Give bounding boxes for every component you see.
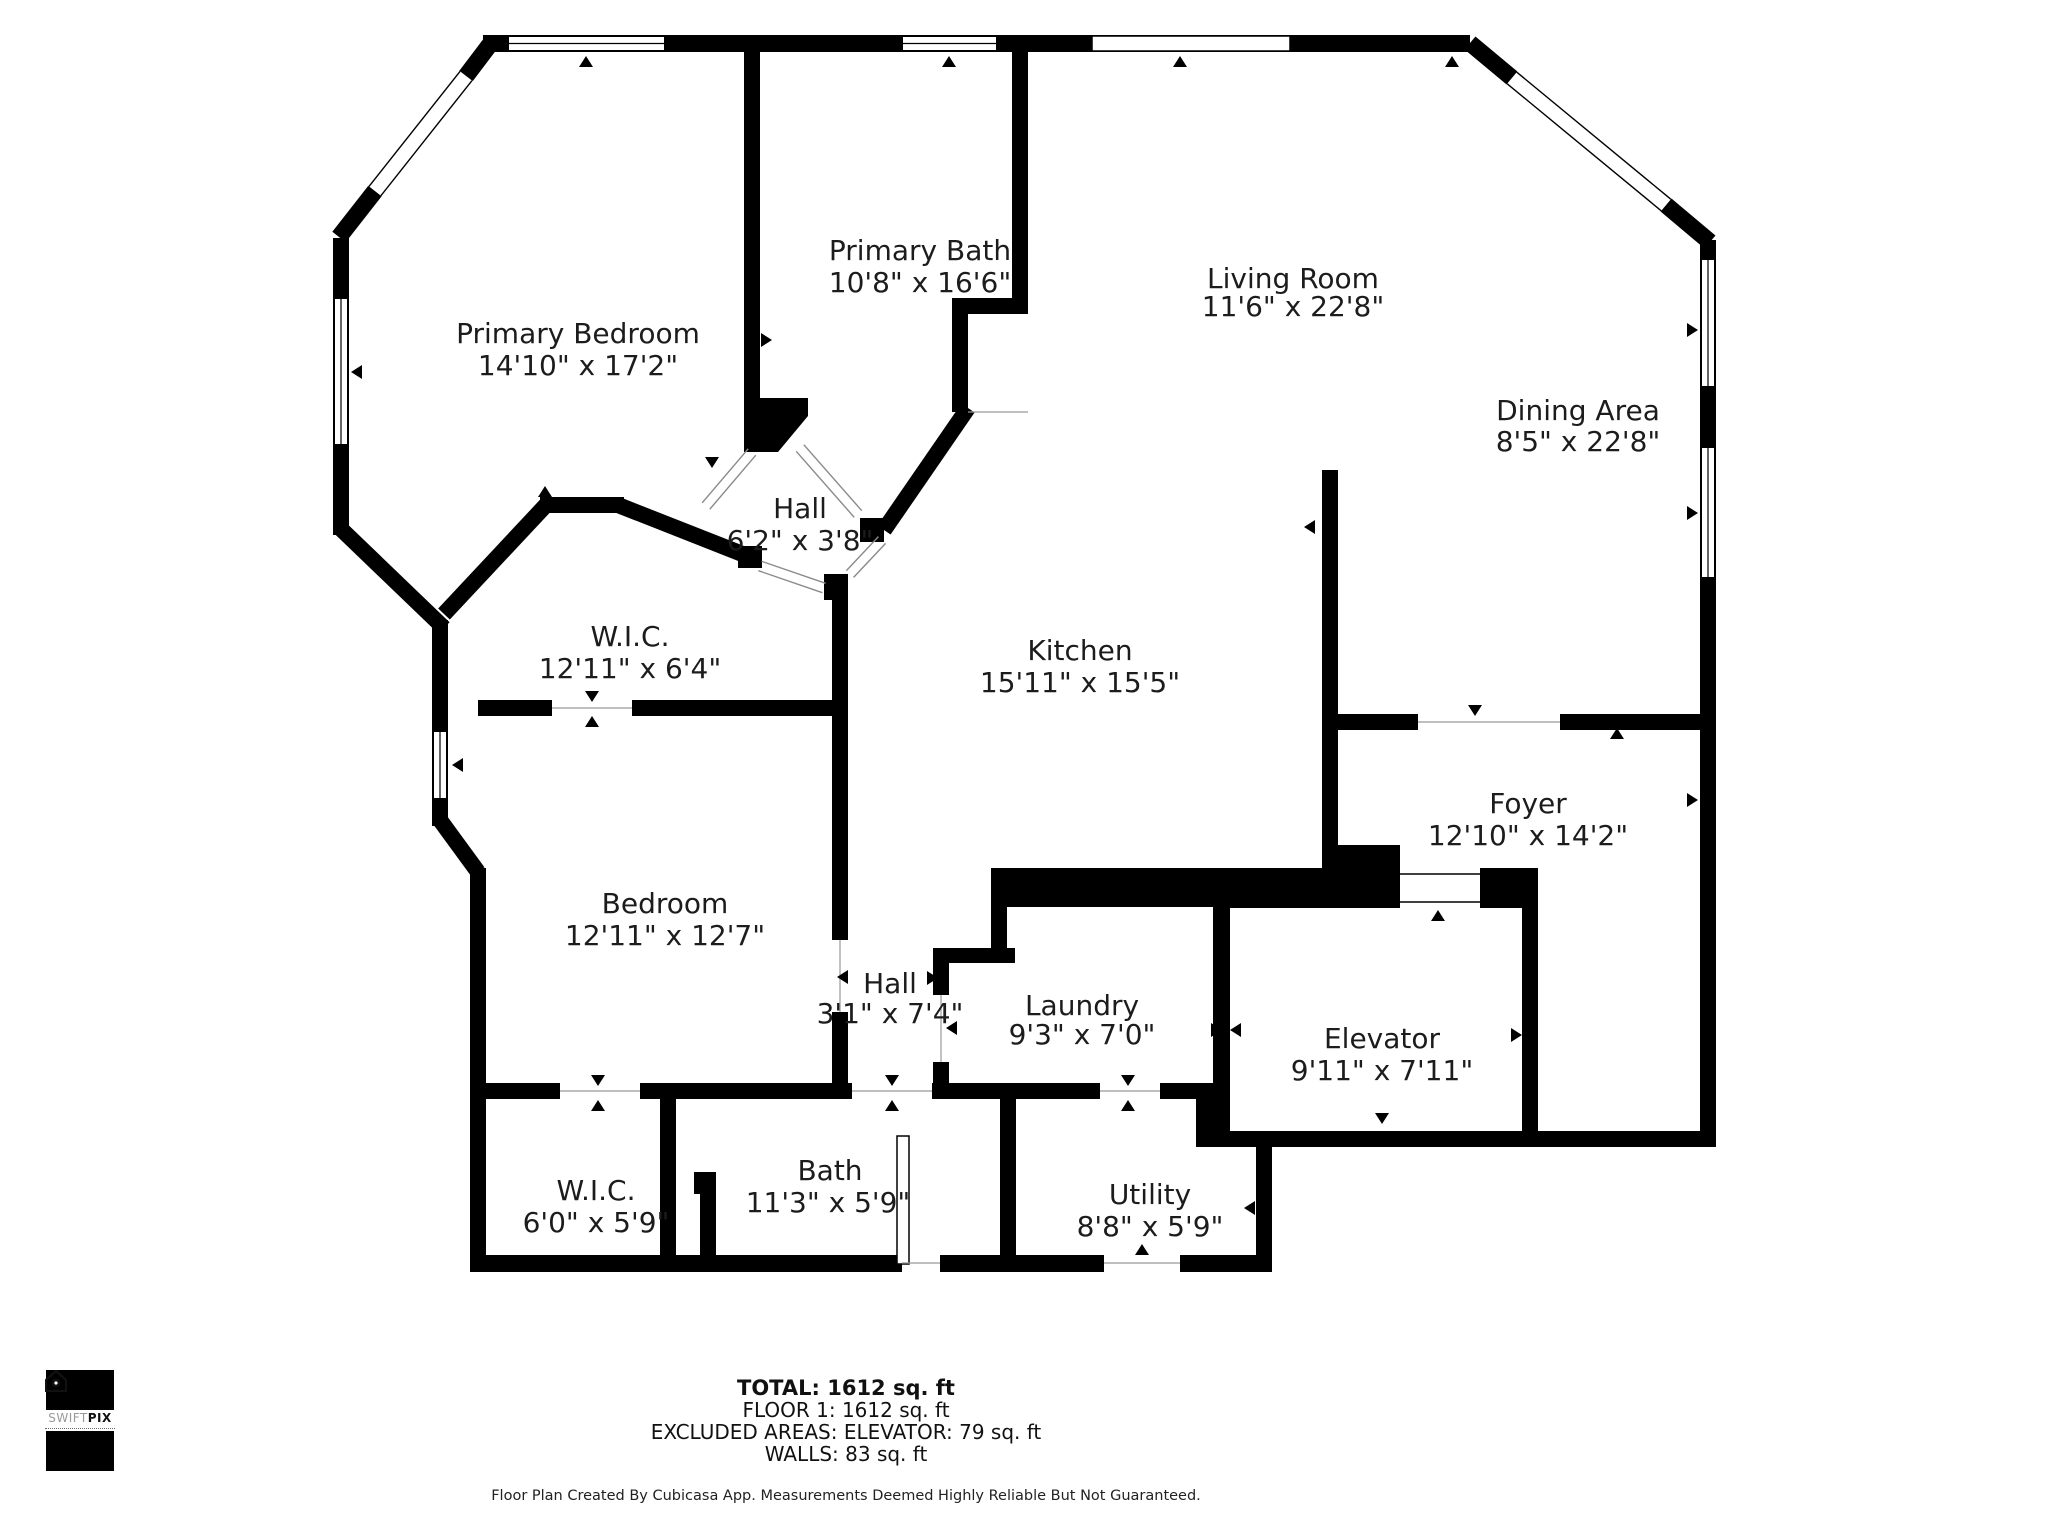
wall (952, 298, 968, 412)
wall (1470, 43, 1512, 78)
wall (466, 43, 491, 76)
marker-up-icon (1431, 910, 1445, 921)
disclaimer-text: Floor Plan Created By Cubicasa App. Meas… (491, 1488, 1201, 1504)
room-dims-bath: 11'3" x 5'9" (746, 1186, 911, 1219)
marker-left-icon (837, 970, 848, 984)
marker-down-icon (885, 1075, 899, 1086)
wall (478, 700, 552, 716)
window (508, 36, 665, 51)
marker-down-icon (1375, 1113, 1389, 1124)
wall (632, 700, 848, 716)
elevator-door (1400, 868, 1480, 908)
summary-walls: WALLS: 83 sq. ft (651, 1443, 1042, 1465)
room-dims-wic-lower: 6'0" x 5'9" (523, 1206, 670, 1239)
floor-plan-page: { "rooms": [ {"id":"primary-bedroom","na… (0, 0, 2048, 1536)
marker-up-icon (1121, 1100, 1135, 1111)
wall (1322, 470, 1338, 845)
room-dims-bedroom: 12'11" x 12'7" (565, 919, 765, 952)
wall (744, 398, 808, 452)
wall (333, 445, 349, 535)
logo-mid: SWIFTPIX (45, 1410, 115, 1429)
marker-up-icon (885, 1100, 899, 1111)
logo-brand-light: SWIFT (48, 1411, 88, 1425)
marker-up-icon (942, 56, 956, 67)
marker-down-icon (591, 1075, 605, 1086)
marker-left-icon (452, 758, 463, 772)
window (1092, 36, 1290, 51)
door-line (702, 449, 748, 503)
wall (1700, 578, 1716, 1147)
window (433, 731, 447, 799)
window (1701, 259, 1715, 387)
wall (884, 408, 968, 530)
wall (932, 1083, 1100, 1099)
marker-left-icon (1230, 1023, 1241, 1037)
room-label-kitchen: Kitchen (1027, 634, 1132, 667)
wall (1256, 1139, 1272, 1272)
wall (1012, 52, 1028, 306)
room-dims-wic-upper: 12'11" x 6'4" (539, 652, 721, 685)
marker-left-icon (351, 365, 362, 379)
marker-down-icon (1468, 705, 1482, 716)
room-dims-utility: 8'8" x 5'9" (1077, 1210, 1224, 1243)
room-dims-hall-upper: 6'2" x 3'8" (727, 524, 874, 557)
window (334, 298, 348, 445)
wall (440, 820, 478, 872)
wall (1560, 714, 1716, 730)
floor-plan-svg: Primary Bedroom 14'10" x 17'2" Primary B… (0, 0, 2048, 1536)
wall (1322, 714, 1418, 730)
room-label-wic-upper: W.I.C. (591, 620, 670, 653)
swiftpix-logo: SWIFTPIX (45, 1370, 115, 1471)
marker-down-icon (585, 691, 599, 702)
logo-brand-bold: PIX (88, 1411, 112, 1425)
room-dims-kitchen: 15'11" x 15'5" (980, 666, 1180, 699)
wall (1522, 908, 1538, 1139)
wall (478, 1083, 560, 1099)
room-label-bath: Bath (797, 1154, 862, 1187)
wall (1000, 1099, 1016, 1272)
wall (333, 238, 349, 298)
room-label-hall-upper: Hall (773, 492, 827, 525)
room-label-dining-area: Dining Area (1496, 394, 1660, 427)
wall (991, 907, 1007, 955)
logo-bottom-block (46, 1431, 114, 1471)
summary-total: TOTAL: 1612 sq. ft (651, 1377, 1042, 1399)
window (1701, 447, 1715, 578)
wall (340, 528, 444, 628)
room-label-foyer: Foyer (1489, 787, 1567, 820)
marker-right-icon (1511, 1028, 1522, 1042)
wall (640, 1083, 852, 1099)
wall (1160, 1083, 1204, 1099)
marker-up-icon (538, 486, 552, 497)
wall (940, 1255, 1104, 1272)
summary-floor: FLOOR 1: 1612 sq. ft (651, 1399, 1042, 1421)
wall (470, 868, 486, 1272)
room-label-primary-bath: Primary Bath (829, 234, 1011, 267)
marker-up-icon (579, 56, 593, 67)
room-dims-foyer: 12'10" x 14'2" (1428, 819, 1628, 852)
wall (1666, 205, 1710, 242)
door-line (762, 561, 826, 583)
wall (1196, 1131, 1716, 1147)
marker-up-icon (585, 716, 599, 727)
wall (339, 191, 375, 237)
wall (470, 1255, 902, 1272)
marker-right-icon (1687, 323, 1698, 337)
window (369, 71, 472, 195)
room-dims-hall-lower: 3'1" x 7'4" (817, 997, 964, 1030)
logo-brand: SWIFTPIX (45, 1412, 115, 1425)
room-label-primary-bedroom: Primary Bedroom (456, 317, 700, 350)
wall (694, 1172, 716, 1194)
window (1507, 72, 1671, 211)
door-line (710, 455, 756, 509)
wall (444, 505, 546, 614)
marker-right-icon (1687, 506, 1698, 520)
room-label-wic-lower: W.I.C. (557, 1174, 636, 1207)
area-summary: TOTAL: 1612 sq. ft FLOOR 1: 1612 sq. ft … (651, 1377, 1042, 1465)
wall (991, 868, 1228, 907)
house-camera-icon (45, 1370, 67, 1392)
room-dims-laundry: 9'3" x 7'0" (1009, 1018, 1156, 1051)
wall (540, 497, 624, 513)
window (902, 36, 997, 51)
wall (660, 1099, 676, 1272)
room-dims-elevator: 9'11" x 7'11" (1291, 1054, 1473, 1087)
wall (1322, 845, 1400, 907)
marker-left-icon (1304, 520, 1315, 534)
door-line (758, 571, 822, 593)
marker-up-icon (1135, 1244, 1149, 1255)
room-label-hall-lower: Hall (863, 967, 917, 1000)
wall (1480, 868, 1538, 908)
room-dims-dining-area: 8'5" x 22'8" (1496, 425, 1661, 458)
marker-right-icon (1687, 793, 1698, 807)
room-label-bedroom: Bedroom (602, 887, 729, 920)
marker-up-icon (1173, 56, 1187, 67)
marker-left-icon (1244, 1201, 1255, 1215)
room-label-elevator: Elevator (1324, 1022, 1441, 1055)
summary-excluded: EXCLUDED AREAS: ELEVATOR: 79 sq. ft (651, 1421, 1042, 1443)
marker-down-icon (1121, 1075, 1135, 1086)
marker-up-icon (1445, 56, 1459, 67)
marker-right-icon (761, 333, 772, 347)
room-dims-living-room: 11'6" x 22'8" (1202, 290, 1384, 323)
wall (1700, 387, 1716, 447)
wall (744, 52, 760, 398)
marker-down-icon (705, 457, 719, 468)
marker-up-icon (591, 1100, 605, 1111)
room-dims-primary-bath: 10'8" x 16'6" (829, 266, 1011, 299)
wall (432, 620, 448, 731)
room-label-utility: Utility (1109, 1178, 1191, 1211)
wall (832, 588, 848, 940)
room-dims-primary-bedroom: 14'10" x 17'2" (478, 349, 678, 382)
